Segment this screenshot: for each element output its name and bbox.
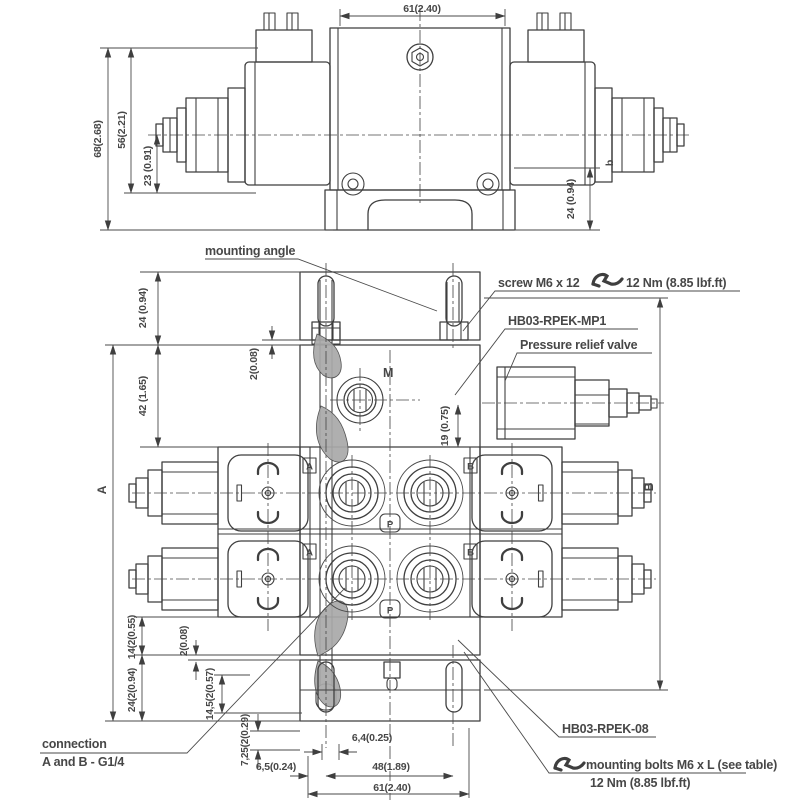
top-view: 61(2.40) 68(2.68) 56(2.21) 23 (0.91) 24 … [92,3,692,230]
dim-block-top: 42 (1.65) [137,376,149,416]
dim-total-height: 68(2.68) [92,120,104,158]
dim-relief-offset: 19 (0.75) [439,406,451,446]
port-m-label: M [383,366,393,380]
label-bolts: mounting bolts M6 x L (see table) [586,758,777,772]
dim-gap-bottom: 2(0.08) [179,626,190,656]
dim-angle-height: 24 (0.94) [565,179,577,219]
port-b2-label: B [467,548,474,559]
dim-bottom-145: 14,5(2(0.57) [205,668,216,720]
label-mounting-angle: mounting angle [205,244,295,258]
label-connection-1: connection [42,737,107,751]
dim-top-width: 61(2.40) [403,3,441,15]
marker-b: b [604,160,616,166]
dim-edge: 6,5(0.24) [256,761,296,773]
dim-bottom-14: 14(2(0.55) [127,615,138,659]
label-connection-2: A and B - G1/4 [42,755,124,769]
dim-bolt-spacing: 48(1.89) [372,761,410,773]
dim-body-height: 56(2.21) [116,111,128,149]
label-screw: screw M6 x 12 [498,276,580,290]
label-relief-valve: Pressure relief valve [520,338,638,352]
label-screw-torque: 12 Nm (8.85 lbf.ft) [626,276,726,290]
dim-bottom-width: 61(2.40) [373,782,411,794]
dim-top-offset: 24 (0.94) [137,288,149,328]
label-model-08: HB03-RPEK-08 [562,722,649,736]
label-bolts-torque: 12 Nm (8.85 lbf.ft) [590,776,690,790]
dim-side-b: B [642,482,656,491]
dim-bottom-24: 24(2(0.94) [127,668,138,712]
drawing-page: 61(2.40) 68(2.68) 56(2.21) 23 (0.91) 24 … [0,0,800,800]
port-b1-label: B [467,462,474,473]
annotations: mounting angle screw M6 x 12 12 Nm (8.85… [40,244,777,790]
port-a2-label: A [306,548,313,559]
dim-side-a: A [95,485,109,494]
port-circles [319,460,463,612]
engineering-drawing: 61(2.40) 68(2.68) 56(2.21) 23 (0.91) 24 … [0,0,800,800]
port-a1-label: A [306,462,313,473]
label-model-mp1: HB03-RPEK-MP1 [508,314,606,328]
dim-slot: 6,4(0.25) [352,732,392,744]
dim-gap-top: 2(0.08) [248,348,260,380]
dim-center-height: 23 (0.91) [142,146,154,186]
dim-bottom-725: 7,25(2(0.29) [240,714,251,766]
